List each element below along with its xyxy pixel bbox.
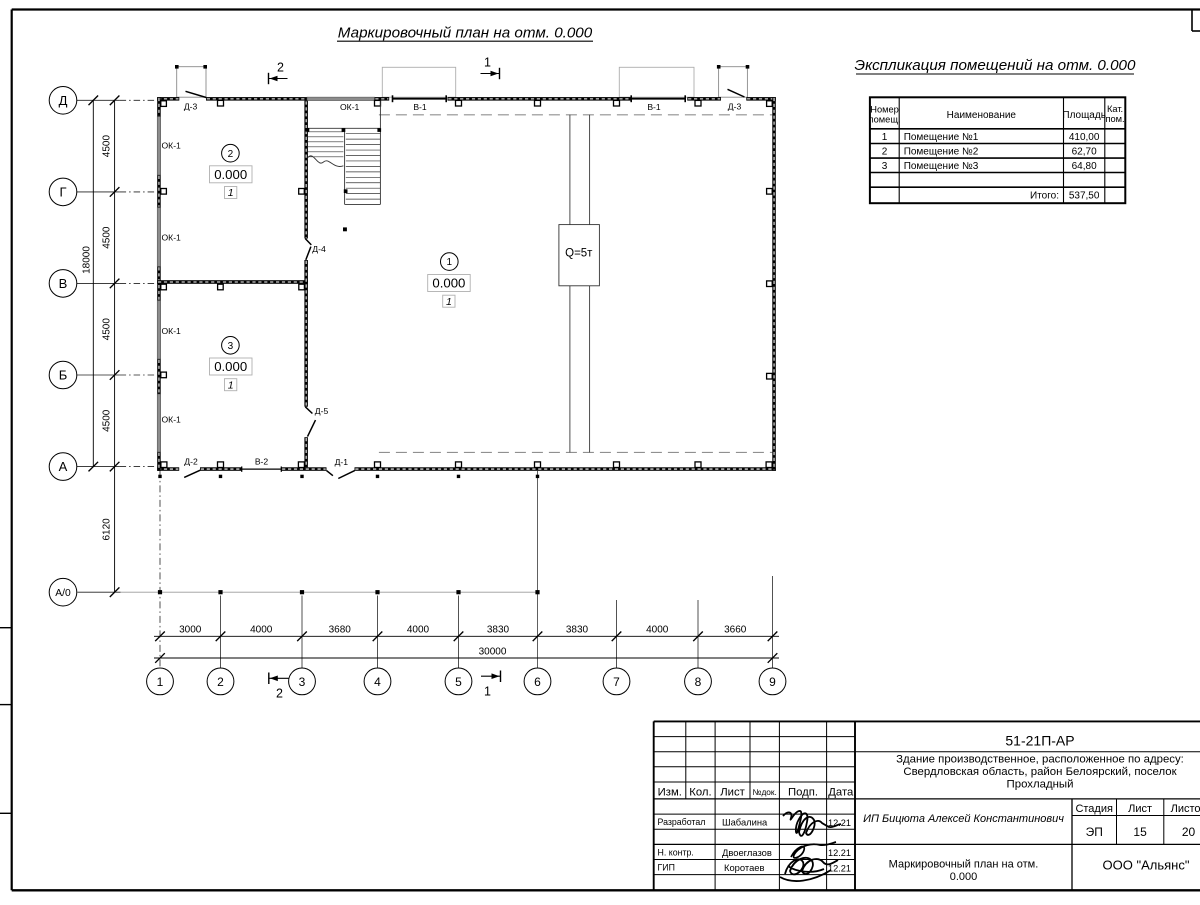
svg-text:8: 8 (695, 675, 702, 689)
svg-text:4000: 4000 (646, 624, 669, 635)
svg-text:Маркировочный план на отм.: Маркировочный план на отм. (889, 859, 1039, 871)
svg-text:Лист: Лист (1128, 803, 1152, 815)
svg-text:Д: Д (59, 93, 68, 108)
svg-text:537,50: 537,50 (1069, 191, 1100, 202)
svg-text:Итого:: Итого: (1030, 191, 1059, 202)
svg-text:Д-4: Д-4 (312, 244, 326, 254)
svg-text:В: В (59, 276, 68, 291)
svg-text:Экспликация помещений на отм.: Экспликация помещений на отм. 0.000 (855, 57, 1136, 74)
svg-text:Прохладный: Прохладный (1007, 779, 1074, 791)
svg-text:В-1: В-1 (413, 102, 427, 112)
svg-text:2: 2 (882, 147, 888, 158)
svg-text:1: 1 (882, 132, 888, 143)
svg-text:62,70: 62,70 (1072, 147, 1097, 158)
svg-text:Двоеглазов: Двоеглазов (722, 847, 772, 858)
svg-text:ГИП: ГИП (658, 863, 675, 873)
svg-text:В-1: В-1 (647, 102, 661, 112)
svg-text:3680: 3680 (329, 624, 352, 635)
svg-text:Изм.: Изм. (658, 786, 682, 798)
svg-text:Наименование: Наименование (947, 110, 1017, 121)
svg-text:Помещение №3: Помещение №3 (904, 161, 979, 172)
svg-text:Листов: Листов (1171, 803, 1200, 815)
svg-text:0.000: 0.000 (214, 359, 247, 374)
svg-text:2: 2 (277, 61, 284, 75)
svg-text:3660: 3660 (724, 624, 747, 635)
svg-text:6120: 6120 (102, 518, 113, 541)
svg-text:3: 3 (228, 341, 234, 352)
svg-text:Д-3: Д-3 (728, 102, 742, 112)
svg-text:2: 2 (217, 675, 224, 689)
svg-text:Лист: Лист (720, 786, 745, 798)
svg-text:ОК-1: ОК-1 (162, 326, 182, 336)
svg-text:4000: 4000 (250, 624, 273, 635)
svg-text:А/0: А/0 (55, 588, 71, 599)
svg-text:2: 2 (276, 687, 283, 701)
svg-text:Кат.: Кат. (1107, 104, 1123, 114)
svg-text:Коротаев: Коротаев (724, 862, 765, 873)
svg-text:9: 9 (769, 675, 776, 689)
svg-text:4500: 4500 (102, 409, 113, 432)
svg-text:4500: 4500 (102, 318, 113, 341)
svg-text:1: 1 (446, 296, 452, 308)
svg-text:51-21П-АР: 51-21П-АР (1005, 733, 1074, 749)
svg-text:12.21: 12.21 (828, 863, 851, 873)
svg-text:4500: 4500 (102, 135, 113, 158)
svg-text:Б: Б (59, 368, 68, 383)
svg-text:Кол.: Кол. (689, 786, 711, 798)
svg-text:30000: 30000 (479, 647, 507, 658)
svg-text:Помещение №2: Помещение №2 (904, 147, 979, 158)
svg-text:В-2: В-2 (255, 456, 269, 466)
svg-text:1: 1 (228, 379, 234, 391)
svg-text:Разработал: Разработал (658, 817, 706, 827)
svg-text:Q=5т: Q=5т (565, 248, 593, 260)
svg-text:0.000: 0.000 (950, 871, 978, 883)
svg-text:№док.: №док. (753, 787, 777, 797)
svg-text:3: 3 (299, 675, 306, 689)
svg-text:Г: Г (59, 185, 66, 200)
svg-text:Д-1: Д-1 (335, 457, 349, 467)
svg-text:Стадия: Стадия (1075, 803, 1113, 815)
svg-text:3830: 3830 (487, 624, 510, 635)
svg-text:1: 1 (447, 257, 453, 268)
svg-text:ООО "Альянс": ООО "Альянс" (1103, 858, 1190, 873)
svg-text:15: 15 (1133, 825, 1147, 839)
svg-text:0.000: 0.000 (214, 167, 247, 182)
svg-text:Свердловская область, район Бе: Свердловская область, район Белоярский, … (903, 766, 1177, 778)
svg-text:4000: 4000 (407, 624, 430, 635)
svg-text:Д-2: Д-2 (184, 456, 198, 466)
svg-text:Д-3: Д-3 (184, 102, 198, 112)
svg-text:Н. контр.: Н. контр. (658, 847, 694, 857)
svg-text:Шабалина: Шабалина (722, 817, 768, 828)
svg-text:1: 1 (157, 675, 164, 689)
svg-text:ОК-1: ОК-1 (162, 141, 182, 151)
svg-text:410,00: 410,00 (1069, 132, 1100, 143)
svg-text:18000: 18000 (82, 246, 93, 274)
svg-text:1: 1 (484, 685, 491, 699)
svg-text:Здание производственное, распо: Здание производственное, расположенное п… (896, 753, 1184, 765)
svg-text:0.000: 0.000 (432, 276, 465, 291)
svg-text:ИП Бицюта Алексей Константинов: ИП Бицюта Алексей Константинович (863, 813, 1064, 825)
svg-text:3830: 3830 (566, 624, 589, 635)
svg-text:6: 6 (534, 675, 541, 689)
svg-text:Маркировочный план на отм. 0.0: Маркировочный план на отм. 0.000 (338, 25, 593, 42)
svg-text:помещ.: помещ. (869, 115, 901, 125)
svg-text:пом.: пом. (1105, 114, 1124, 124)
svg-text:12.21: 12.21 (828, 848, 851, 858)
svg-text:Помещение №1: Помещение №1 (904, 132, 979, 143)
svg-text:Подп.: Подп. (788, 786, 818, 798)
svg-text:А: А (59, 459, 68, 474)
svg-text:ОК-1: ОК-1 (162, 233, 182, 243)
svg-text:64,80: 64,80 (1072, 161, 1097, 172)
svg-text:2: 2 (228, 149, 234, 160)
svg-text:1: 1 (228, 187, 234, 199)
svg-text:1: 1 (484, 56, 491, 70)
svg-text:4: 4 (374, 675, 381, 689)
svg-text:4500: 4500 (102, 226, 113, 249)
svg-text:Площадь: Площадь (1062, 110, 1106, 121)
svg-text:Д-5: Д-5 (315, 406, 329, 416)
svg-text:Дата: Дата (828, 786, 854, 798)
svg-text:3: 3 (882, 161, 888, 172)
svg-text:7: 7 (613, 675, 620, 689)
svg-text:5: 5 (455, 675, 462, 689)
svg-text:20: 20 (1182, 825, 1196, 839)
svg-text:ОК-1: ОК-1 (340, 102, 360, 112)
svg-text:3000: 3000 (179, 624, 202, 635)
svg-text:ОК-1: ОК-1 (162, 414, 182, 424)
svg-text:ЭП: ЭП (1086, 825, 1103, 839)
svg-text:Номер: Номер (870, 104, 899, 114)
